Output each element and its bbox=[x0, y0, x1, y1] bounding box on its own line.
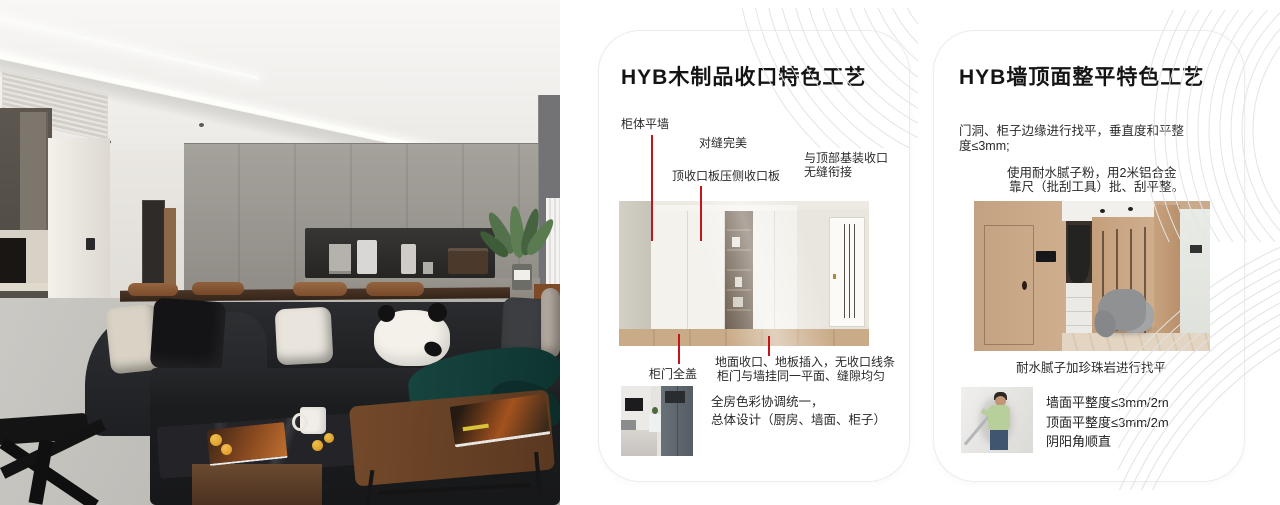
hanging-clothes bbox=[1068, 225, 1090, 283]
callout-full-cover-door: 柜门全盖 bbox=[649, 367, 697, 381]
summary-2: 总体设计（厨房、墙面、柜子） bbox=[711, 413, 886, 427]
white-pillow bbox=[275, 307, 334, 366]
plant-pot-label bbox=[514, 270, 530, 280]
coffee-machine bbox=[401, 244, 416, 274]
panda-ear bbox=[378, 305, 395, 322]
corridor-floor bbox=[621, 430, 657, 456]
photo-caption: 耐水腻子加珍珠岩进行找平 bbox=[1016, 361, 1166, 375]
card1-title: HYB木制品收口特色工艺 bbox=[621, 61, 866, 91]
card2-main-image bbox=[974, 201, 1210, 351]
callout-line bbox=[768, 336, 770, 356]
lemon bbox=[312, 440, 323, 451]
para1-line1: 门洞、柜子边缘进行找平，垂直度和平整 bbox=[959, 124, 1184, 139]
dining-chair bbox=[128, 283, 178, 296]
open-door-leaf bbox=[1154, 205, 1180, 347]
built-in-coffee-machine bbox=[0, 238, 26, 284]
closet-drawers bbox=[1066, 283, 1092, 339]
bullet-corners: 阴阳角顺直 bbox=[1046, 431, 1111, 450]
dining-chair bbox=[192, 282, 244, 295]
callout-line bbox=[651, 135, 653, 241]
corridor-sofa bbox=[621, 420, 636, 430]
potted-plant bbox=[488, 206, 560, 294]
taupe-pillow bbox=[541, 288, 560, 358]
card1-main-image bbox=[619, 201, 869, 346]
panda-ear bbox=[428, 303, 447, 322]
corridor-plant bbox=[652, 407, 658, 414]
white-mug bbox=[300, 407, 326, 434]
worker-pants bbox=[990, 430, 1008, 450]
card2-title: HYB墙顶面整平特色工艺 bbox=[959, 61, 1204, 91]
living-room-photo bbox=[0, 0, 560, 505]
lemon bbox=[221, 444, 232, 455]
card-wall-leveling-craft: HYB墙顶面整平特色工艺 门洞、柜子边缘进行找平，垂直度和平整 度≤3mm; 使… bbox=[933, 30, 1245, 482]
lemon bbox=[210, 434, 222, 446]
summary-1: 全房色彩协调统一， bbox=[711, 395, 824, 409]
magazine-title-mark bbox=[463, 424, 489, 432]
para2-line2: 靠尺（批刮工具）批、刮平整。 bbox=[1009, 180, 1184, 195]
marble-table-base bbox=[192, 464, 322, 505]
small-cup bbox=[423, 262, 433, 274]
closet-niche bbox=[1066, 221, 1092, 337]
light-switch bbox=[86, 238, 95, 250]
dining-chair bbox=[366, 282, 424, 296]
note-floor-2: 柜门与墙挂同一平面、缝隙均匀 bbox=[717, 369, 885, 383]
panda-plush bbox=[374, 310, 450, 366]
callout-cabinet-flush-wall: 柜体平墙 bbox=[621, 117, 669, 131]
wall-niche bbox=[305, 228, 495, 278]
para2-line1: 使用耐水腻子粉，用2米铝合金 bbox=[1007, 166, 1176, 181]
door-handle bbox=[1022, 281, 1027, 290]
callout-line bbox=[700, 186, 702, 241]
kitchen-upper-cabinet bbox=[20, 112, 48, 230]
callout-ceiling-joint-2: 无缝衔接 bbox=[804, 165, 852, 179]
note-floor-1: 地面收口、地板插入，无收口线条 bbox=[715, 355, 895, 369]
corridor-counter bbox=[649, 414, 661, 432]
callout-ceiling-joint-1: 与顶部基装收口 bbox=[804, 151, 888, 165]
lemon bbox=[324, 433, 334, 443]
bullet-ceiling-flatness: 顶面平整度≤3mm/2m bbox=[1046, 412, 1169, 431]
card1-small-image bbox=[621, 386, 693, 456]
doorway-opening bbox=[1180, 209, 1210, 351]
dining-chair bbox=[293, 282, 347, 296]
page: HYB木制品收口特色工艺 柜体平墙 对缝完美 顶收口板压侧收口板 与顶部基装收口… bbox=[0, 0, 1280, 505]
photo-floor bbox=[1062, 333, 1210, 351]
corridor-tv bbox=[625, 398, 643, 411]
callout-perfect-seam: 对缝完美 bbox=[699, 136, 747, 150]
card-wood-trim-craft: HYB木制品收口特色工艺 柜体平墙 对缝完美 顶收口板压侧收口板 与顶部基装收口… bbox=[598, 30, 910, 482]
thermostat bbox=[1036, 251, 1056, 262]
black-pillow bbox=[150, 298, 227, 373]
callout-top-trim-panel: 顶收口板压侧收口板 bbox=[672, 169, 780, 183]
callout-line bbox=[678, 334, 680, 364]
downlight-dot bbox=[199, 123, 204, 127]
espresso-machine bbox=[357, 240, 377, 274]
mug-handle bbox=[292, 413, 308, 431]
wall-fixture bbox=[1190, 245, 1202, 253]
radio-speaker bbox=[448, 248, 488, 274]
panda-patch bbox=[422, 339, 444, 359]
card2-small-image bbox=[961, 387, 1033, 453]
coffee-rack bbox=[329, 244, 351, 274]
bullet-wall-flatness: 墙面平整度≤3mm/2m bbox=[1046, 392, 1169, 411]
corridor-appliance bbox=[665, 391, 685, 403]
para1-line2: 度≤3mm; bbox=[959, 139, 1010, 154]
